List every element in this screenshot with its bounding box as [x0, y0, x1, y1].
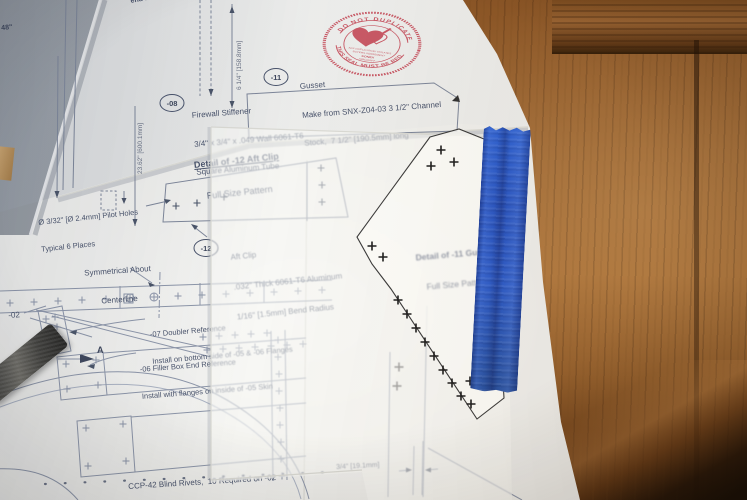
symmetrical-note: Symmetrical About Centerline: [64, 244, 172, 318]
detail12-heading: Detail of -12 Aft Clip Full Size Pattern: [164, 127, 311, 215]
note-line: -07 Doubler Reference: [150, 318, 291, 339]
note-line: -06 Filler Box End Reference: [139, 355, 271, 374]
wood-rail: [552, 0, 747, 54]
photo-of-aircraft-plans: { "stamp": { "ring_top": "DO NOT DUPLICA…: [0, 0, 747, 500]
blue-painters-tape: [470, 125, 531, 393]
partial-bend-radius-label: end Radius: [130, 0, 168, 5]
balloon-12: -12: [201, 244, 212, 253]
metal-bar: [0, 323, 69, 406]
note-line: Centerline: [67, 291, 171, 308]
detail-title: Detail of -12 Aft Clip: [166, 148, 306, 173]
partial-48-label: 48": [1, 24, 13, 32]
balloon-08: -08: [167, 99, 178, 108]
callout-title: Firewall Stiffener: [191, 102, 301, 120]
callout-title: Aft Clip: [230, 242, 339, 263]
do-not-duplicate-stamp: DO NOT DUPLICATE THIS SEAL MUST BE RED A…: [320, 10, 424, 78]
callout-spec: Make from SNX-Z04-03 3 1/2" Channel: [302, 99, 442, 119]
table-edge-shadow: [545, 360, 747, 500]
callout-spec: Stock, 7 1/2" [190.5mm] long: [304, 128, 444, 148]
note-line: Symmetrical About: [65, 263, 169, 280]
rivet-edge-dimension: 3/4" [19.1mm]: [336, 462, 380, 471]
tube-height-dimension: 6 1/4" [158.8mm]: [236, 41, 243, 90]
section-a-label: A: [97, 345, 104, 355]
detail-subtitle: Full Size Pattern: [169, 180, 309, 205]
filler-box-note: -06 Filler Box End Reference Install wit…: [138, 337, 274, 410]
callout-spec: .032" Thick 6061-T6 Aluminum: [233, 271, 342, 292]
panel-width-dimension: 23.62" [600.1mm]: [137, 123, 144, 174]
rivet-note: CCP-42 Blind Rivets, 10 Required on -02: [128, 473, 276, 491]
note-line: Ø 3/32" [Ø 2.4mm] Pilot Holes: [38, 207, 139, 226]
note-line: Install with flanges on inside of -05 Sk…: [142, 382, 274, 401]
strip-template-marks: [393, 363, 404, 391]
part-02-label: -02: [8, 310, 20, 320]
balloon-11: -11: [271, 73, 281, 82]
